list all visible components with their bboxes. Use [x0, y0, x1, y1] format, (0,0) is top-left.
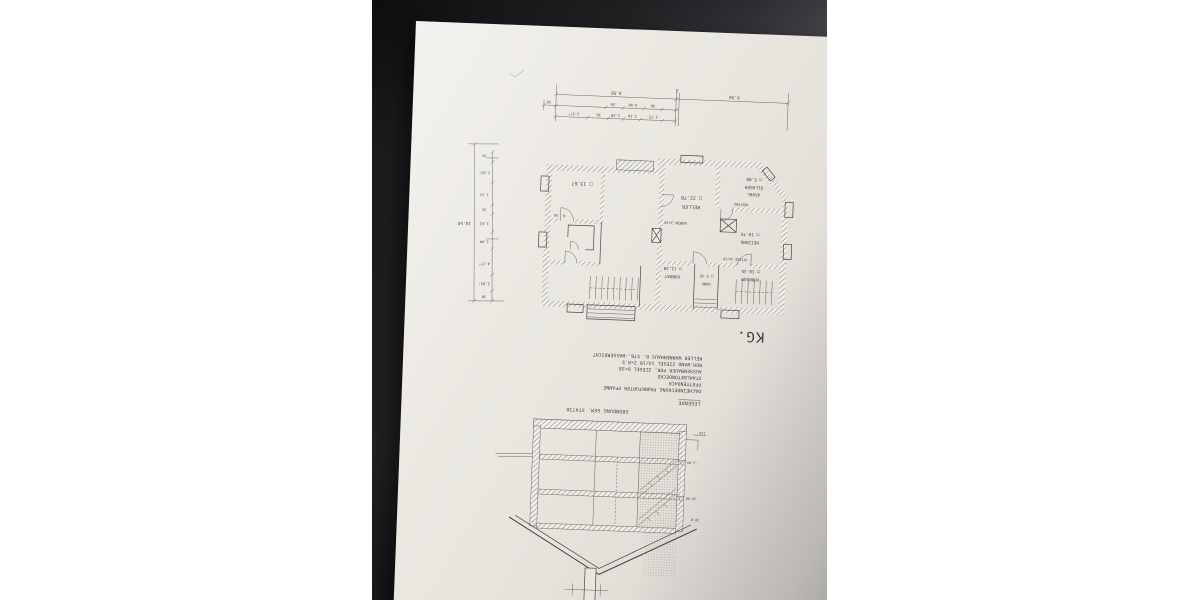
room-heizung-name: HEIZUNG: [740, 240, 759, 246]
room-vorraum-area: □ 10.35: [741, 269, 760, 275]
dim-label: 30: [482, 295, 487, 299]
dim-label: 4.27⁵: [478, 261, 489, 265]
dim-label: 1.75: [649, 115, 658, 119]
kamin-block: [652, 228, 662, 242]
legend-line: STAHLBETONDECKE: [657, 373, 702, 381]
legend-block: LEGENDE DACHEINDECKUNG FRANKFURTER PFANN…: [591, 351, 703, 406]
blueprint-paper: 8.50 2 6.50 30 24 4.50 36 2.57⁵ 36 1.38 …: [391, 21, 827, 600]
kamin-label: KAMIN 3×18: [664, 220, 687, 225]
dim-label: 36: [596, 113, 601, 117]
room-gang-area: □ 5.35: [700, 274, 714, 279]
dim-label: 2.57⁵: [568, 112, 579, 116]
room-vorrat-name: VORRAT: [664, 274, 680, 280]
dim-label: 1.10: [628, 114, 637, 118]
room-keller-name: KELLER: [682, 203, 700, 210]
dim-label: 2.82⁵: [478, 281, 489, 285]
dim-label: 30: [482, 154, 487, 158]
dim-label: 36: [482, 208, 487, 212]
room-gang-name: GANG: [702, 282, 711, 286]
stair-left: [587, 276, 639, 321]
dimension-chain-top: 8.50 2 6.50 30 24 4.50 36 2.57⁵ 36 1.38 …: [541, 84, 790, 131]
dim-label: 8.50: [611, 91, 622, 96]
stiege-label: STIEGE 16/18: [723, 257, 747, 262]
room-oellager-capacity: 4500L: [747, 192, 761, 198]
room-heizung-area: □ 10.75: [740, 232, 759, 238]
room-vorrat-area: □ 11.30: [663, 266, 682, 272]
speckle: [643, 532, 677, 577]
floor-title: KG.: [736, 328, 765, 345]
room-keller-area: □ 22.78: [681, 194, 702, 201]
dim-label: 24: [611, 102, 616, 106]
top-annex: [616, 160, 653, 171]
photo-viewer-canvas: 8.50 2 6.50 30 24 4.50 36 2.57⁵ 36 1.38 …: [0, 0, 1200, 600]
dim-label: 4.50: [628, 103, 637, 107]
section-interior: [593, 430, 641, 527]
section-wall-left: [530, 426, 541, 526]
dimension-chain-left: 10.50 30 2.82⁵ 3.51 36 2.61 1.04 4.27⁵ 2…: [457, 142, 504, 303]
level-label: -2.84: [687, 461, 697, 465]
chimney: [584, 568, 597, 600]
room-vorraum-name: VORRAUM: [741, 277, 760, 283]
room-oellager-note: RÜSTUNG: [734, 202, 748, 208]
level-label: 110: [699, 431, 705, 435]
pencil-mark: [510, 70, 524, 78]
dim-label: 2.82⁵: [479, 170, 490, 174]
stair-speckle: [637, 430, 683, 532]
dim-label: 2: [676, 89, 678, 93]
desk-photo: 8.50 2 6.50 30 24 4.50 36 2.57⁵ 36 1.38 …: [372, 0, 827, 600]
dim-label: 1.04: [480, 239, 489, 243]
dim-label: 30: [547, 100, 552, 104]
room-oellager-area: □ 5.08: [746, 177, 762, 183]
dim-label: 36: [651, 104, 656, 108]
section-caption: GRÜNDUNG GEM. STATIK: [566, 406, 629, 415]
floor-plan: □ 13.67 □ 22.78 KELLER □ 5.08 ÖLLAGER 45…: [535, 150, 795, 346]
rebar-note: 20 Ø: [691, 518, 699, 523]
terrain-left: [495, 452, 532, 457]
dim-label: 2.61: [480, 221, 489, 225]
room-label-area: □ 13.67: [571, 180, 592, 187]
dim-label: 1.38: [611, 113, 620, 117]
dim-label: 10.50: [457, 221, 471, 226]
level-label: ±0.00: [686, 497, 696, 501]
pillar-label: R. 30: [554, 213, 565, 217]
dim-label: 3.51: [480, 192, 489, 196]
dim-label: 6.50: [729, 95, 740, 100]
legend-line: PFETTENDACH: [669, 380, 702, 387]
section-drawing: GRÜNDUNG GEM. STATIK: [490, 403, 708, 600]
room-oellager-name: ÖLLAGER: [744, 185, 763, 191]
blueprint-drawing: 8.50 2 6.50 30 24 4.50 36 2.57⁵ 36 1.38 …: [391, 21, 827, 600]
downpipe: [686, 435, 707, 451]
